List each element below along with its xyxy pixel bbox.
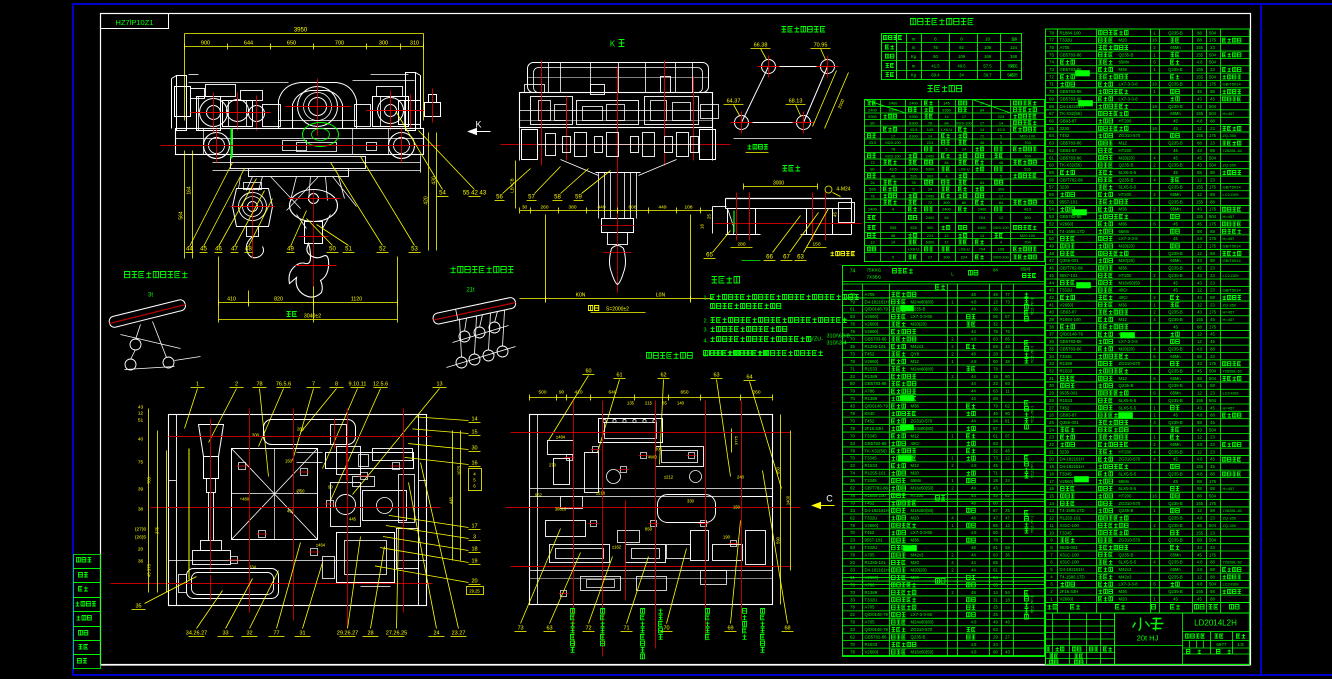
svg-text:78: 78 <box>850 523 855 528</box>
svg-text:3230: 3230 <box>1060 126 1070 131</box>
svg-text:D4-182161H: D4-182161H <box>1060 457 1084 462</box>
svg-text:2400: 2400 <box>868 107 877 112</box>
svg-text:M24x80(80): M24x80(80) <box>911 426 934 431</box>
svg-text:2400: 2400 <box>942 207 951 212</box>
svg-text:GB5783-86: GB5783-86 <box>1060 52 1083 57</box>
svg-text:27: 27 <box>1049 405 1054 410</box>
svg-text:76: 76 <box>933 45 938 50</box>
svg-text:GB/T782-86: GB/T782-86 <box>1060 266 1084 271</box>
svg-text:41.5: 41.5 <box>931 63 940 68</box>
svg-text:V2660): V2660) <box>865 314 879 319</box>
svg-text:L0N: L0N <box>656 293 666 299</box>
svg-text:704: 704 <box>1024 153 1031 158</box>
svg-text:S=2000±2: S=2000±2 <box>606 307 629 313</box>
svg-text:29.25: 29.25 <box>469 589 480 594</box>
svg-text:R1533: R1533 <box>865 642 878 647</box>
svg-text:535: 535 <box>1024 167 1031 172</box>
svg-text:65(4): 65(4) <box>1021 267 1031 272</box>
svg-text:T452: T452 <box>1060 405 1070 410</box>
svg-text:M16x50(50: M16x50(50 <box>1119 280 1141 285</box>
svg-text:28: 28 <box>367 631 373 637</box>
svg-text:504: 504 <box>1209 493 1217 498</box>
svg-text:44: 44 <box>971 307 976 312</box>
svg-text:65Mn: 65Mn <box>1170 567 1181 572</box>
svg-text:49: 49 <box>287 247 294 253</box>
svg-text:M20-100: M20-100 <box>1020 233 1036 238</box>
svg-text:52: 52 <box>379 247 386 253</box>
svg-text:78: 78 <box>850 493 855 498</box>
svg-text:88: 88 <box>1197 523 1202 528</box>
svg-text:175: 175 <box>1209 310 1217 315</box>
svg-text:TCZ-7P-1: TCZ-7P-1 <box>1030 595 1035 613</box>
svg-text:H=457: H=457 <box>1223 111 1236 116</box>
svg-text:R1884-100: R1884-100 <box>1060 317 1082 322</box>
svg-text:31: 31 <box>1049 376 1054 381</box>
svg-text:43: 43 <box>1197 295 1202 300</box>
svg-text:Q235-B: Q235-B <box>1168 163 1183 168</box>
svg-text:M20-100: M20-100 <box>1020 133 1036 138</box>
svg-text:78: 78 <box>850 359 855 364</box>
svg-text:27.26.25: 27.26.25 <box>386 631 407 637</box>
svg-text:6300: 6300 <box>909 120 918 125</box>
svg-text:4.8: 4.8 <box>971 649 977 654</box>
svg-text:Q355-001: Q355-001 <box>1060 420 1080 425</box>
svg-text:X31C-100: X31C-100 <box>1060 552 1080 557</box>
svg-text:155: 155 <box>1196 199 1204 204</box>
svg-text:23: 23 <box>1210 302 1215 307</box>
svg-text:48: 48 <box>245 247 252 253</box>
svg-text:29: 29 <box>993 635 998 640</box>
svg-text:M42x3: M42x3 <box>1119 574 1133 579</box>
svg-text:28: 28 <box>993 478 998 483</box>
svg-text:175: 175 <box>1209 479 1217 484</box>
svg-text:Q235-B: Q235-B <box>1168 516 1183 521</box>
svg-text:ZQ-350: ZQ-350 <box>1223 133 1237 138</box>
svg-text:75KXG: 75KXG <box>867 268 882 273</box>
svg-text:535: 535 <box>910 173 917 178</box>
svg-text:GB/T5014: GB/T5014 <box>1223 244 1242 249</box>
svg-text:420: 420 <box>424 196 430 205</box>
svg-text:Q235-B: Q235-B <box>1168 251 1183 256</box>
svg-text:240: 240 <box>737 475 745 480</box>
svg-text:1400: 1400 <box>786 495 791 505</box>
svg-text:76: 76 <box>1049 45 1054 50</box>
svg-text:80: 80 <box>1005 374 1010 379</box>
svg-text:270: 270 <box>549 463 557 468</box>
svg-text:300: 300 <box>998 187 1005 192</box>
svg-text:R1255-101: R1255-101 <box>865 560 887 565</box>
svg-text:21: 21 <box>1049 449 1054 454</box>
svg-text:Kg: Kg <box>911 54 917 59</box>
svg-text:LC2-D09: LC2-D09 <box>1223 273 1240 278</box>
svg-text:23: 23 <box>1210 354 1215 359</box>
svg-text:HT200: HT200 <box>911 493 925 498</box>
svg-text:26: 26 <box>1049 413 1054 418</box>
svg-text:5: 5 <box>945 147 947 152</box>
svg-text:6LX5-5-5: 6LX5-5-5 <box>1119 170 1137 175</box>
svg-text:9557-101: 9557-101 <box>1060 273 1079 278</box>
svg-text:88: 88 <box>1197 479 1202 484</box>
svg-text:43: 43 <box>993 486 998 491</box>
svg-text:6LX5-5-5: 6LX5-5-5 <box>1119 185 1137 190</box>
svg-text:65Mn: 65Mn <box>1170 45 1181 50</box>
svg-text:50.7: 50.7 <box>1007 73 1016 78</box>
svg-text:ZG310-570: ZG310-570 <box>911 627 933 632</box>
svg-text:R1389: R1389 <box>865 396 878 401</box>
svg-text:M24x80(80): M24x80(80) <box>911 299 934 304</box>
svg-text:45: 45 <box>1210 339 1215 344</box>
svg-text:3230: 3230 <box>1060 449 1070 454</box>
svg-text:M20(20): M20(20) <box>1119 155 1136 160</box>
svg-text:Q235-B: Q235-B <box>1168 398 1183 403</box>
svg-text:57.5: 57.5 <box>983 63 992 68</box>
svg-text:23: 23 <box>850 538 855 543</box>
svg-text:62: 62 <box>1049 148 1054 153</box>
svg-text:M12: M12 <box>911 359 920 364</box>
svg-text:850: 850 <box>776 466 781 474</box>
svg-text:H=457: H=457 <box>1223 236 1236 241</box>
svg-text:88: 88 <box>993 396 998 401</box>
svg-text:43: 43 <box>1049 288 1054 293</box>
svg-text:9557-101: 9557-101 <box>865 538 884 543</box>
svg-text:48: 48 <box>971 351 976 356</box>
svg-text:78: 78 <box>850 649 855 654</box>
svg-text:4.8: 4.8 <box>1197 560 1203 565</box>
svg-text:300: 300 <box>927 225 934 230</box>
svg-text:65: 65 <box>706 253 713 259</box>
svg-text:78: 78 <box>850 426 855 431</box>
svg-text:44: 44 <box>971 381 976 386</box>
svg-text:88: 88 <box>1197 30 1202 35</box>
svg-text:QY8: QY8 <box>911 351 920 356</box>
svg-text:300: 300 <box>379 41 388 47</box>
svg-text:HT200: HT200 <box>1119 273 1133 278</box>
svg-text:63: 63 <box>850 545 855 550</box>
svg-text:Q235-B: Q235-B <box>1168 346 1183 351</box>
svg-text:5: 5 <box>912 187 914 192</box>
svg-text:67: 67 <box>783 255 790 261</box>
svg-text:504: 504 <box>1209 30 1217 35</box>
svg-text:45: 45 <box>1197 596 1202 601</box>
svg-text:40: 40 <box>138 437 144 443</box>
svg-text:9350: 9350 <box>868 114 877 119</box>
svg-text:58: 58 <box>1005 545 1010 550</box>
svg-text:55 42 43: 55 42 43 <box>463 191 487 197</box>
svg-text:68: 68 <box>784 626 790 632</box>
svg-text:Q235-B: Q235-B <box>1168 471 1183 476</box>
svg-text:175: 175 <box>1209 552 1217 557</box>
svg-text:55: 55 <box>1049 199 1054 204</box>
svg-text:M42x3: M42x3 <box>911 344 925 349</box>
svg-text:Q235-B: Q235-B <box>1168 560 1183 565</box>
svg-text:17: 17 <box>1049 479 1054 484</box>
svg-text:155: 155 <box>1196 185 1204 190</box>
svg-text:10: 10 <box>1049 530 1054 535</box>
svg-text:224: 224 <box>961 255 968 260</box>
svg-text:57: 57 <box>1005 314 1010 319</box>
svg-text:155: 155 <box>1196 398 1204 403</box>
svg-text:51: 51 <box>1049 229 1054 234</box>
svg-text:16: 16 <box>1152 104 1157 109</box>
svg-text:19: 19 <box>471 559 477 565</box>
svg-text:43.5: 43.5 <box>889 167 897 172</box>
svg-text:175: 175 <box>1209 221 1217 226</box>
svg-text:215: 215 <box>645 401 653 406</box>
svg-text:45: 45 <box>1173 596 1178 601</box>
svg-text:H=457: H=457 <box>1223 486 1236 491</box>
svg-text:20: 20 <box>850 560 855 565</box>
svg-text:45: 45 <box>1197 368 1202 373</box>
svg-text:GB/T5014: GB/T5014 <box>1223 288 1242 293</box>
svg-text:M20(20): M20(20) <box>1119 244 1136 249</box>
svg-text:M20(20): M20(20) <box>1119 258 1136 263</box>
svg-text:3775: 3775 <box>734 435 739 445</box>
svg-text:LX8-U: LX8-U <box>908 247 919 252</box>
svg-text:500: 500 <box>538 390 546 396</box>
svg-text:23: 23 <box>1210 67 1215 72</box>
svg-text:13: 13 <box>993 299 998 304</box>
svg-text:40: 40 <box>1049 310 1054 315</box>
svg-text:(26)5: (26)5 <box>135 535 147 541</box>
svg-text:7262BL-62: 7262BL-62 <box>1223 508 1243 513</box>
svg-text:T4-1586.17D: T4-1586.17D <box>1060 508 1085 513</box>
svg-text:87: 87 <box>993 508 998 513</box>
svg-text:46: 46 <box>891 173 895 178</box>
svg-text:6300: 6300 <box>909 133 918 138</box>
svg-text:V2660): V2660) <box>1060 596 1074 601</box>
svg-text:504: 504 <box>1209 538 1217 543</box>
svg-text:63: 63 <box>713 373 719 379</box>
svg-text:78: 78 <box>850 605 855 610</box>
svg-text:23: 23 <box>1210 391 1215 396</box>
svg-text:9535-001: 9535-001 <box>1060 391 1079 396</box>
svg-text:85: 85 <box>993 523 998 528</box>
svg-text:+480: +480 <box>240 497 250 502</box>
svg-text:GB93-87: GB93-87 <box>1060 413 1078 418</box>
svg-text:43: 43 <box>1197 104 1202 109</box>
svg-text:63: 63 <box>850 314 855 319</box>
svg-text:GB93-87: GB93-87 <box>1060 119 1078 124</box>
svg-text:17: 17 <box>891 133 895 138</box>
svg-text:78: 78 <box>850 322 855 327</box>
svg-text:T332U: T332U <box>1060 288 1073 293</box>
svg-text:88: 88 <box>1197 229 1202 234</box>
svg-text:704: 704 <box>1024 140 1031 145</box>
svg-text:46: 46 <box>993 411 998 416</box>
svg-text:6LX5-5-5: 6LX5-5-5 <box>1119 471 1137 476</box>
svg-text:644: 644 <box>244 41 253 47</box>
svg-text:GB5783-86: GB5783-86 <box>865 381 888 386</box>
svg-text:M16x50(50): M16x50(50) <box>911 508 934 513</box>
svg-text:46: 46 <box>1049 266 1054 271</box>
svg-text:12: 12 <box>1197 508 1202 513</box>
svg-text:70: 70 <box>850 500 855 505</box>
svg-text:155: 155 <box>1196 45 1204 50</box>
svg-text:13: 13 <box>1005 523 1010 528</box>
svg-text:73: 73 <box>517 626 523 632</box>
svg-text:88: 88 <box>1210 229 1215 234</box>
svg-text:88: 88 <box>1197 38 1202 43</box>
svg-text:HT200: HT200 <box>1119 493 1133 498</box>
svg-text:77: 77 <box>273 631 279 637</box>
svg-text:37: 37 <box>1049 332 1054 337</box>
svg-text:±484: ±484 <box>556 435 566 440</box>
svg-text:Q235-B: Q235-B <box>1168 30 1183 35</box>
svg-text:T452: T452 <box>1060 133 1070 138</box>
svg-text:23: 23 <box>1210 266 1215 271</box>
svg-text:650: 650 <box>680 390 688 396</box>
svg-text:74: 74 <box>850 471 855 476</box>
svg-text:23: 23 <box>1210 273 1215 278</box>
svg-text:43: 43 <box>1005 344 1010 349</box>
svg-text:TCZ-7P-1: TCZ-7P-1 <box>1030 460 1035 478</box>
svg-text:M24x80(80): M24x80(80) <box>911 366 934 371</box>
svg-text:12: 12 <box>138 411 144 417</box>
svg-text:71: 71 <box>993 471 998 476</box>
svg-text:504: 504 <box>1209 60 1217 65</box>
svg-text:Q235-B: Q235-B <box>1119 383 1134 388</box>
svg-text:4.8: 4.8 <box>1197 516 1203 521</box>
svg-text:R1533: R1533 <box>865 366 878 371</box>
svg-text:504: 504 <box>1209 111 1217 116</box>
svg-text:66.38: 66.38 <box>754 43 768 49</box>
svg-text:60: 60 <box>993 500 998 505</box>
svg-text:Q235-B: Q235-B <box>1168 104 1183 109</box>
svg-text:6LX5-5-5: 6LX5-5-5 <box>1119 398 1137 403</box>
svg-text:109: 109 <box>958 54 966 59</box>
svg-text:32: 32 <box>246 631 252 637</box>
svg-text:57: 57 <box>1049 185 1054 190</box>
svg-text:504: 504 <box>1209 104 1217 109</box>
svg-text:88: 88 <box>1210 119 1215 124</box>
svg-text:64: 64 <box>746 375 752 381</box>
svg-text:GB5783-86: GB5783-86 <box>1060 141 1083 146</box>
svg-text:11: 11 <box>1049 523 1054 528</box>
svg-text:T452: T452 <box>865 351 875 356</box>
svg-text:45: 45 <box>1197 221 1202 226</box>
svg-text:25: 25 <box>993 612 998 617</box>
svg-text:65Mn: 65Mn <box>1170 376 1181 381</box>
svg-text:850: 850 <box>645 527 653 532</box>
svg-text:43: 43 <box>1197 258 1202 263</box>
svg-text:224: 224 <box>927 140 934 145</box>
svg-text:M36: M36 <box>1119 589 1128 594</box>
svg-text:LC2-D09: LC2-D09 <box>1223 582 1240 587</box>
svg-text:9.10.11: 9.10.11 <box>349 382 367 388</box>
svg-text:820: 820 <box>274 297 283 303</box>
svg-text:12: 12 <box>1197 435 1202 440</box>
svg-text:M36: M36 <box>1119 67 1128 72</box>
svg-text:45: 45 <box>993 493 998 498</box>
svg-text:65Mn: 65Mn <box>1170 207 1181 212</box>
svg-text:48: 48 <box>971 545 976 550</box>
svg-text:88: 88 <box>1197 324 1202 329</box>
svg-text:12: 12 <box>1197 339 1202 344</box>
svg-text:Kg: Kg <box>911 73 917 78</box>
svg-text:53: 53 <box>993 627 998 632</box>
svg-text:R1389: R1389 <box>865 590 878 595</box>
svg-text:Q235-B: Q235-B <box>1168 67 1183 72</box>
svg-text:145: 145 <box>927 127 934 132</box>
svg-text:2400: 2400 <box>978 207 987 212</box>
svg-text:88: 88 <box>1210 170 1215 175</box>
svg-text:Q235-B: Q235-B <box>1168 141 1183 146</box>
svg-text:3040±2: 3040±2 <box>304 314 321 320</box>
svg-text:504: 504 <box>1209 52 1217 57</box>
svg-text:R1255-101: R1255-101 <box>865 471 887 476</box>
svg-text:45 375: 45 375 <box>147 563 152 576</box>
svg-text:LX8-U: LX8-U <box>941 127 952 132</box>
svg-text:78: 78 <box>993 366 998 371</box>
svg-text:65Mn: 65Mn <box>1170 442 1181 447</box>
svg-text:48: 48 <box>971 590 976 595</box>
svg-text:65Mn: 65Mn <box>1170 552 1181 557</box>
svg-text:88: 88 <box>1210 251 1215 256</box>
svg-text:78: 78 <box>850 411 855 416</box>
svg-text:74: 74 <box>850 269 856 275</box>
svg-text:6LX5-5-5: 6LX5-5-5 <box>1119 560 1137 565</box>
svg-text:70: 70 <box>850 642 855 647</box>
svg-text:6LX5-5-5: 6LX5-5-5 <box>1119 486 1137 491</box>
svg-text:70: 70 <box>850 433 855 438</box>
svg-text:79: 79 <box>850 299 855 304</box>
svg-text:78: 78 <box>870 193 874 198</box>
svg-text:14: 14 <box>993 590 998 595</box>
svg-text:3t: 3t <box>148 293 153 299</box>
svg-text:62: 62 <box>850 515 855 520</box>
svg-text:GB5783-86: GB5783-86 <box>1060 339 1083 344</box>
svg-text:49: 49 <box>993 620 998 625</box>
svg-text:3230: 3230 <box>1060 185 1070 190</box>
svg-text:45: 45 <box>1173 170 1178 175</box>
svg-text:82: 82 <box>1005 493 1010 498</box>
svg-text:51: 51 <box>138 418 144 424</box>
svg-text:78: 78 <box>850 389 855 394</box>
svg-text:6LX5-5-5: 6LX5-5-5 <box>1119 405 1137 410</box>
svg-text:12: 12 <box>1197 391 1202 396</box>
svg-text:4WD: 4WD <box>648 455 657 460</box>
svg-text:16: 16 <box>1152 38 1157 43</box>
svg-text:88: 88 <box>1210 471 1215 476</box>
svg-text:88: 88 <box>1197 493 1202 498</box>
svg-text:±464: ±464 <box>316 543 326 548</box>
svg-text:68: 68 <box>993 344 998 349</box>
svg-text:23: 23 <box>1210 545 1215 550</box>
svg-text:GB/T5014: GB/T5014 <box>1223 82 1242 87</box>
svg-text:88: 88 <box>1197 354 1202 359</box>
svg-text:49.5: 49.5 <box>957 63 966 68</box>
svg-text:88: 88 <box>1210 567 1215 572</box>
svg-text:GB5783-86: GB5783-86 <box>1060 155 1083 160</box>
svg-text:63: 63 <box>546 626 552 632</box>
svg-text:88: 88 <box>1210 148 1215 153</box>
svg-text:20: 20 <box>1049 457 1054 462</box>
svg-text:D4-182161H: D4-182161H <box>865 508 889 513</box>
svg-text:47: 47 <box>1049 258 1054 263</box>
svg-text:T3345: T3345 <box>1060 354 1073 359</box>
svg-text:90: 90 <box>1005 411 1010 416</box>
svg-text:V2660): V2660) <box>865 359 879 364</box>
svg-text:20: 20 <box>138 547 144 553</box>
svg-text:330: 330 <box>687 499 695 504</box>
svg-text:700: 700 <box>335 41 344 47</box>
svg-text:88: 88 <box>1210 199 1215 204</box>
svg-text:4.: 4. <box>704 339 709 345</box>
svg-text:R1533: R1533 <box>865 463 878 468</box>
svg-text:M12: M12 <box>911 433 920 438</box>
svg-text:M20: M20 <box>911 515 920 520</box>
svg-text:33: 33 <box>850 374 855 379</box>
